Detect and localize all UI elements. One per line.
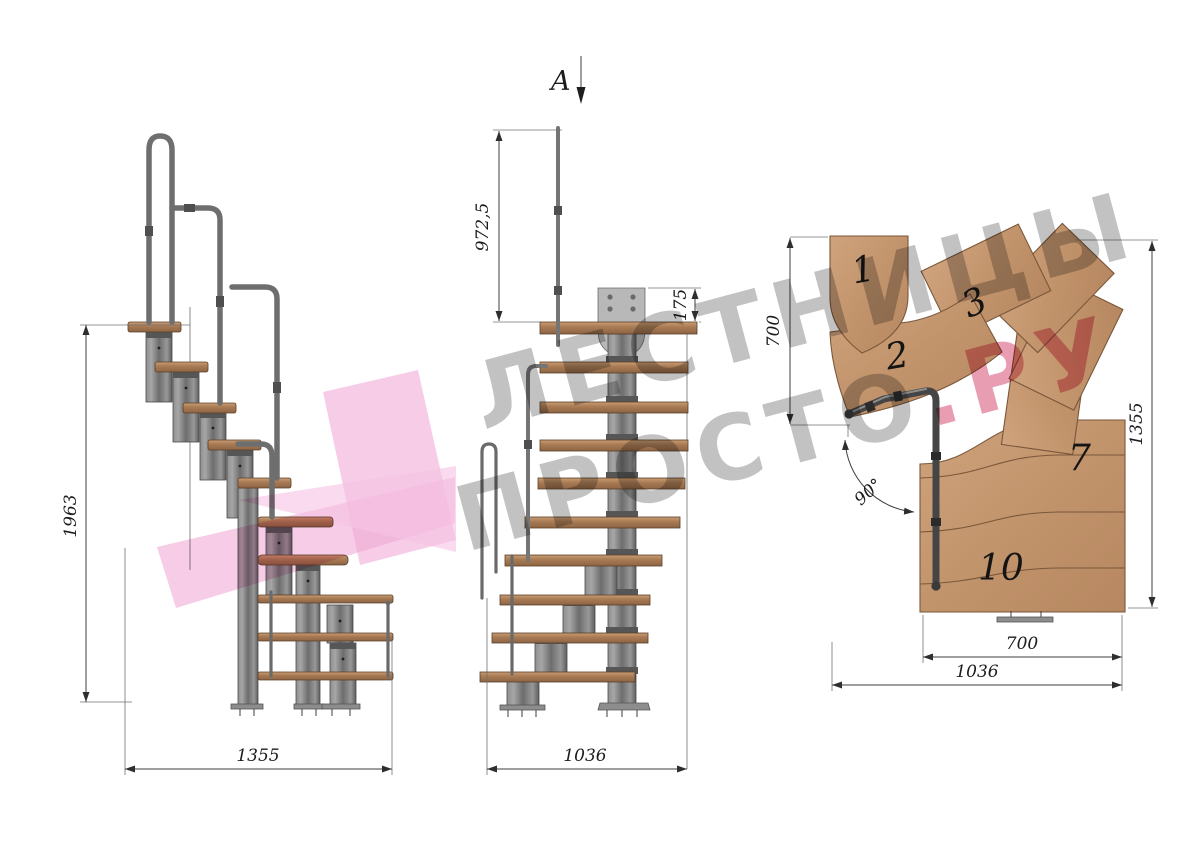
dim-text-angle: 90° [851, 475, 887, 510]
tread [492, 633, 648, 643]
drawing-svg: 1963 1355 A [0, 0, 1200, 849]
dim-text-width: 1355 [236, 746, 279, 766]
tread [480, 672, 635, 682]
dim-text-rail-height: 972,5 [473, 203, 493, 252]
dim-text-front-width: 1036 [563, 746, 606, 766]
dim-text-plan-right: 1355 [1127, 402, 1147, 445]
floor-feet [231, 704, 360, 716]
tread [258, 672, 393, 680]
section-arrow: A [548, 56, 586, 104]
tread [155, 362, 208, 372]
column-foot [598, 703, 650, 710]
tread [258, 595, 393, 603]
tread-number-10: 10 [978, 548, 1024, 589]
center-post [238, 488, 258, 708]
tread [238, 478, 291, 488]
dim-text-plan-bottom-outer: 1036 [955, 662, 998, 682]
tread [258, 633, 393, 641]
handrail-end-cap [931, 581, 940, 590]
plan-bottom-outer-dimension: 1036 [832, 642, 1122, 691]
section-label: A [548, 66, 571, 97]
staircase-drawing: 1963 1355 A [0, 0, 1200, 849]
tread [500, 595, 650, 605]
section-arrowhead [577, 87, 586, 104]
tread-number-7: 7 [1068, 438, 1091, 479]
rail-height-dimension: 972,5 [473, 130, 562, 322]
dim-text-height: 1963 [61, 494, 81, 537]
plan-foot-plate [997, 611, 1053, 622]
dim-text-plan-bottom-inner: 700 [1006, 634, 1039, 654]
tread [183, 403, 236, 413]
plan-bottom-inner-dimension: 700 [923, 615, 1122, 691]
